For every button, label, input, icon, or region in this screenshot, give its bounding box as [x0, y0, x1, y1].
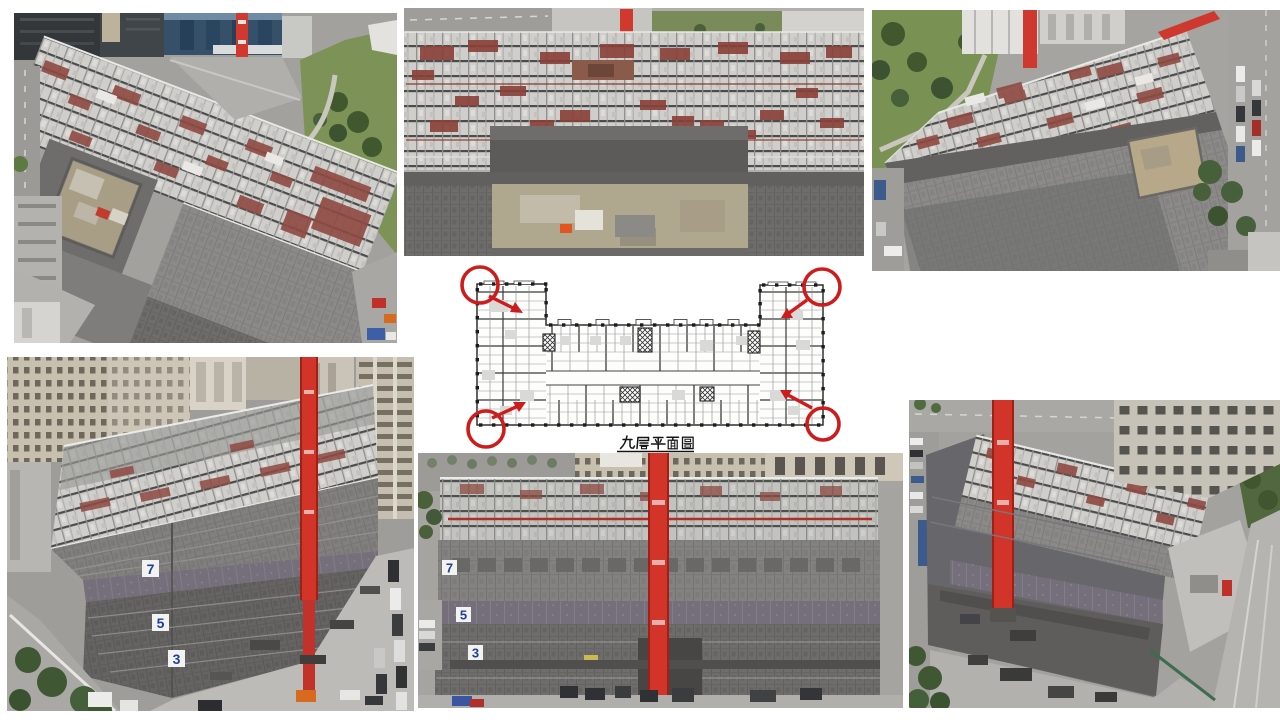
svg-text:3: 3: [472, 646, 479, 661]
svg-text:7: 7: [446, 561, 453, 576]
svg-text:5: 5: [157, 615, 165, 631]
svg-text:7: 7: [147, 561, 155, 577]
svg-text:5: 5: [460, 608, 467, 623]
svg-text:3: 3: [173, 651, 181, 667]
